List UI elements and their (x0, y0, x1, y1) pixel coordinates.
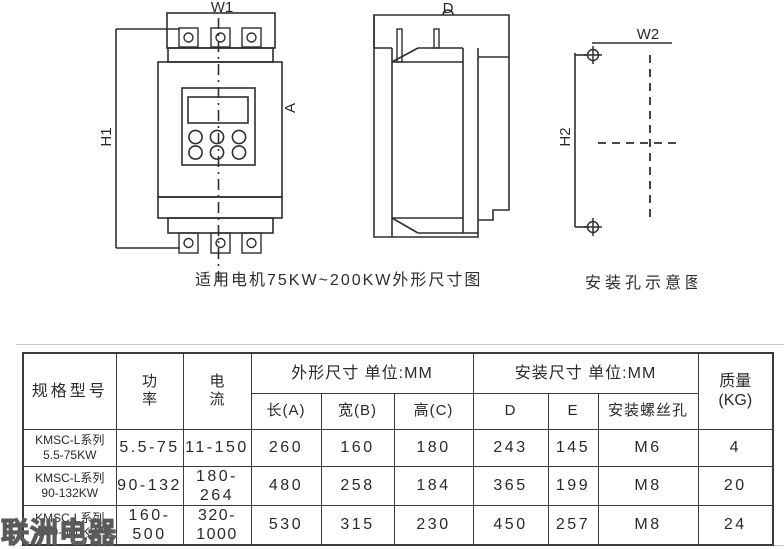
header-width: 宽(B) (321, 393, 394, 429)
cell-height: 180 (394, 429, 473, 466)
header-weight: 质量 (KG) (698, 353, 773, 429)
cell-model: KMSC-L系列 5.5-75KW (23, 429, 116, 466)
cell-width: 258 (321, 466, 394, 505)
cell-e: 257 (548, 505, 598, 545)
cell-d: 243 (473, 429, 548, 466)
cell-screw: M8 (598, 466, 698, 505)
header-dims-group: 外形尺寸 单位:MM (251, 353, 473, 393)
dimension-label-d: D (438, 0, 458, 18)
header-screw: 安装螺丝孔 (598, 393, 698, 429)
cell-current: 11-150 (183, 429, 251, 466)
header-height: 高(C) (394, 393, 473, 429)
cell-length: 260 (251, 429, 321, 466)
front-view-caption: 适用电机75KW~200KW外形尺寸图 (195, 266, 482, 290)
header-current: 电 流 (183, 353, 251, 429)
cell-current: 180-264 (183, 466, 251, 505)
mounting-hole-drawing (555, 20, 784, 260)
table-row: KMSC-L系列 160-500KW 160-500 320- 1000 530… (23, 505, 773, 545)
cell-length: 530 (251, 505, 321, 545)
cell-power: 90-132 (116, 466, 183, 505)
cell-screw: M6 (598, 429, 698, 466)
dimension-label-h2: H2 (557, 122, 575, 152)
header-e: E (548, 393, 598, 429)
mounting-view-caption: 安装孔示意图 (585, 269, 697, 293)
dimension-label-a: A (282, 96, 300, 120)
cell-weight: 20 (698, 466, 773, 505)
cell-d: 365 (473, 466, 548, 505)
table-row: KMSC-L系列 90-132KW 90-132 180-264 480 258… (23, 466, 773, 505)
cell-height: 184 (394, 466, 473, 505)
dimension-label-h1: H1 (98, 122, 116, 152)
cell-d: 450 (473, 505, 548, 545)
header-length: 长(A) (251, 393, 321, 429)
cell-power: 160-500 (116, 505, 183, 545)
front-view-drawing (0, 0, 330, 300)
spec-table: 规格型号 功 率 电 流 外形尺寸 单位:MM 安装尺寸 单位:MM 质量 (K… (22, 352, 774, 546)
side-view-drawing (360, 0, 525, 250)
header-power: 功 率 (116, 353, 183, 429)
cell-length: 480 (251, 466, 321, 505)
cell-e: 199 (548, 466, 598, 505)
cell-current: 320- 1000 (183, 505, 251, 545)
header-mount-group: 安装尺寸 单位:MM (473, 353, 698, 393)
header-model: 规格型号 (23, 353, 116, 429)
table-row: KMSC-L系列 5.5-75KW 5.5-75 11-150 260 160 … (23, 429, 773, 466)
cell-height: 230 (394, 505, 473, 545)
cell-e: 145 (548, 429, 598, 466)
cell-width: 160 (321, 429, 394, 466)
header-d: D (473, 393, 548, 429)
cell-width: 315 (321, 505, 394, 545)
cell-weight: 24 (698, 505, 773, 545)
cell-power: 5.5-75 (116, 429, 183, 466)
cell-screw: M8 (598, 505, 698, 545)
watermark-text: 联洲电器 (1, 511, 117, 549)
dimension-label-w1: W1 (205, 0, 239, 17)
spec-sheet-page: W1 H1 A D W2 H2 适用电机75KW~200KW外形尺寸图 安装孔示… (0, 0, 784, 549)
page-hairline-top (16, 344, 784, 345)
dimension-label-w2: W2 (632, 26, 664, 44)
cell-weight: 4 (698, 429, 773, 466)
cell-model: KMSC-L系列 90-132KW (23, 466, 116, 505)
